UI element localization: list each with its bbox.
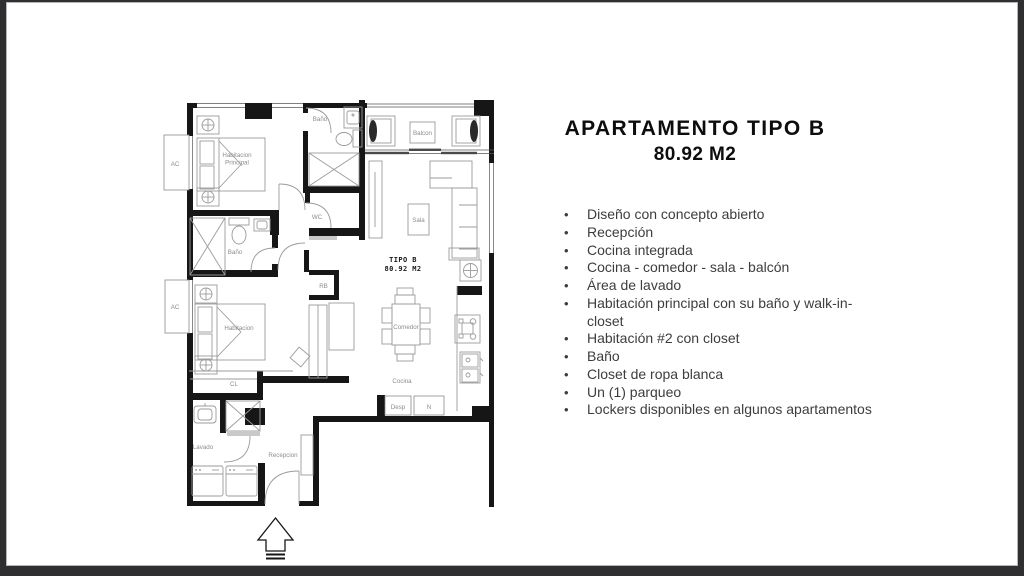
slide-canvas: AC AC Habitacion Principal Baño Balcon S… — [7, 3, 1017, 565]
room-label-cocina: Cocina — [392, 378, 412, 385]
chair — [290, 347, 310, 367]
room-label-desp: Desp — [391, 404, 406, 411]
room-label-recepcion: Recepcion — [268, 452, 298, 459]
page-title: APARTAMENTO TIPO B — [547, 117, 843, 141]
tv-console — [369, 161, 382, 238]
desk — [329, 303, 354, 350]
room-label-nevera: N — [427, 404, 431, 411]
floor-plan-container: AC AC Habitacion Principal Baño Balcon S… — [157, 88, 497, 563]
room-label-bano-top: Baño — [313, 116, 328, 123]
feature-item: Habitación principal con su baño y walk-… — [563, 295, 883, 331]
feature-item: Cocina - comedor - sala - balcón — [563, 259, 883, 277]
room-label-habitacion-principal-1: Habitacion — [222, 152, 252, 159]
info-panel: APARTAMENTO TIPO B 80.92 M2 — [547, 117, 843, 165]
room-label-cl: CL — [230, 381, 238, 388]
room-label-comedor: Comedor — [393, 324, 418, 331]
entry-arrow — [258, 518, 293, 559]
room-label-balcon: Balcon — [413, 130, 432, 137]
feature-item: Área de lavado — [563, 277, 883, 295]
floor-plan: AC AC Habitacion Principal Baño Balcon S… — [157, 88, 497, 563]
room-label-habitacion-principal-2: Principal — [225, 160, 249, 167]
feature-item: Lockers disponibles en algunos apartamen… — [563, 401, 883, 419]
feature-item: Cocina integrada — [563, 242, 883, 260]
feature-item: Un (1) parqueo — [563, 384, 883, 402]
range-hood — [460, 260, 481, 281]
room-label-sala: Sala — [412, 217, 425, 224]
feature-item: Baño — [563, 348, 883, 366]
sofa — [430, 161, 477, 258]
feature-list: Diseño con concepto abierto Recepción Co… — [563, 206, 883, 419]
plan-type-label: TIPO B — [389, 256, 417, 264]
room-label-rb: RB — [319, 283, 328, 290]
feature-item: Closet de ropa blanca — [563, 366, 883, 384]
plan-area-label: 80.92 M2 — [385, 265, 422, 273]
room-label-lavado: Lavado — [193, 444, 214, 451]
bed-2 — [195, 304, 265, 360]
stove — [455, 315, 480, 343]
feature-item: Habitación #2 con closet — [563, 330, 883, 348]
room-label-habitacion2: Habitacion — [224, 325, 254, 332]
room-label-ac-bottom: AC — [171, 304, 180, 311]
feature-item: Diseño con concepto abierto — [563, 206, 883, 224]
page-subtitle: 80.92 M2 — [547, 144, 843, 165]
label-layer: AC AC Habitacion Principal Baño Balcon S… — [171, 116, 433, 459]
bathroom-left-fixtures — [190, 218, 270, 275]
kitchen-sink — [460, 352, 483, 383]
console-table — [301, 435, 313, 475]
room-label-bano-left: Baño — [228, 249, 243, 256]
feature-item: Recepción — [563, 224, 883, 242]
furniture-layer — [164, 107, 483, 496]
window-layer — [186, 102, 495, 333]
room-label-wc: WC — [312, 214, 323, 221]
room-label-ac-top: AC — [171, 161, 180, 168]
